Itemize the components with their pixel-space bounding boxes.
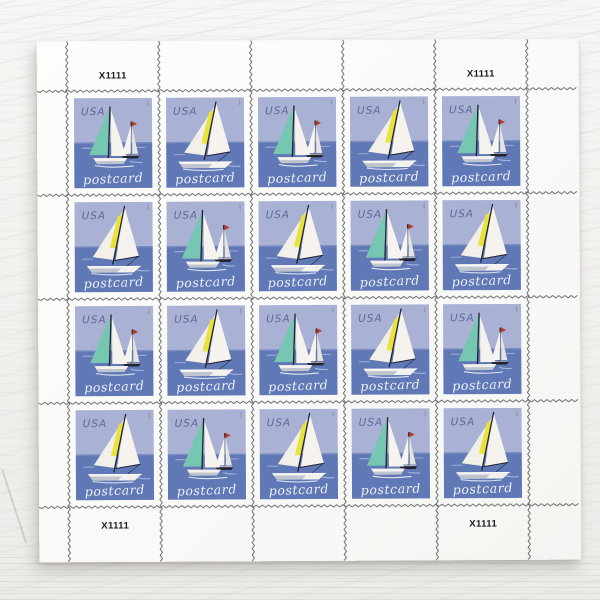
stamp-r1c3	[258, 97, 336, 187]
stamp-r3c1	[75, 306, 153, 396]
stamp-r4c5	[444, 408, 522, 498]
perforation-line	[39, 503, 578, 508]
stamp-r3c5	[443, 304, 521, 394]
stamp-r3c4	[351, 304, 429, 394]
stamp-r1c5	[442, 96, 520, 186]
plate-number-top-right: X1111	[467, 69, 495, 80]
perforation-line	[37, 87, 576, 92]
stamp-r1c1	[74, 98, 152, 188]
perforation-line	[38, 295, 577, 300]
stamp-r2c4	[350, 200, 428, 290]
stamp-r4c2	[168, 409, 246, 499]
stamp-r1c2	[166, 97, 244, 187]
stamp-r4c3	[260, 409, 338, 499]
wood-grain-top	[0, 0, 600, 44]
stamp-sheet: USA postcard	[37, 39, 582, 563]
plate-number-bottom-right: X1111	[469, 519, 497, 530]
perforation-line	[39, 399, 578, 404]
stamp-grid	[74, 96, 522, 500]
perforation-line	[249, 40, 254, 561]
stamp-r1c4	[350, 96, 428, 186]
perforation-line	[65, 41, 70, 562]
perforation-line	[433, 39, 438, 560]
stamp-r4c4	[352, 408, 430, 498]
perforation-line	[341, 40, 346, 561]
stamp-r3c2	[167, 305, 245, 395]
stamp-r3c3	[259, 305, 337, 395]
stamp-sheet-photo: USA postcard	[0, 0, 600, 600]
perforation-line	[157, 41, 162, 562]
stamp-r4c1	[76, 410, 154, 500]
plate-number-bottom-left: X1111	[101, 520, 129, 531]
perforation-line	[525, 39, 530, 560]
plate-number-top-left: X1111	[99, 70, 127, 81]
stamp-r2c3	[258, 201, 336, 291]
stamp-r2c2	[166, 201, 244, 291]
stamp-r2c1	[74, 202, 152, 292]
stamp-sheet-svg: USA postcard	[37, 39, 582, 563]
stamp-r2c5	[442, 200, 520, 290]
perforation-line	[37, 191, 576, 196]
wood-plank-seam	[1, 469, 27, 544]
